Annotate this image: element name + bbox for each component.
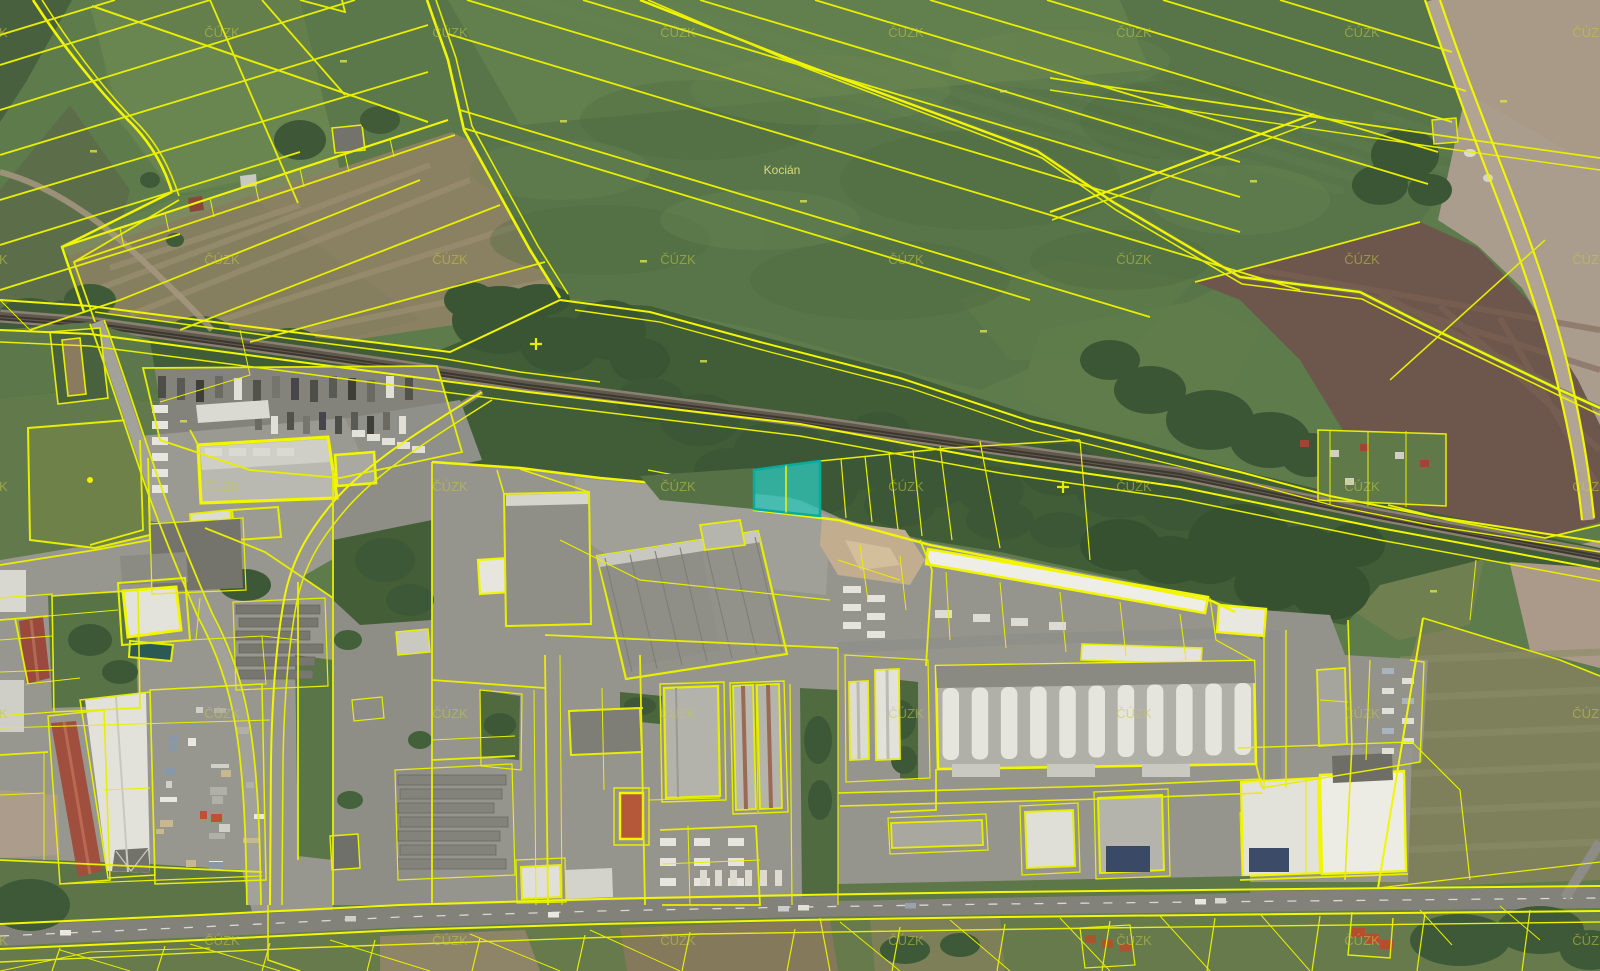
svg-text:ČÚZK: ČÚZK	[432, 252, 468, 267]
svg-text:ČÚZK: ČÚZK	[660, 479, 696, 494]
svg-text:ČÚZK: ČÚZK	[204, 706, 240, 721]
svg-text:ČÚZK: ČÚZK	[432, 933, 468, 948]
svg-text:ČÚZK: ČÚZK	[1572, 25, 1600, 40]
svg-text:ČÚZK: ČÚZK	[1572, 479, 1600, 494]
svg-text:ČÚZK: ČÚZK	[1344, 933, 1380, 948]
svg-text:ČÚZK: ČÚZK	[0, 252, 8, 267]
svg-text:ČÚZK: ČÚZK	[888, 706, 924, 721]
svg-text:ČÚZK: ČÚZK	[1116, 479, 1152, 494]
svg-text:ČÚZK: ČÚZK	[432, 706, 468, 721]
svg-text:ČÚZK: ČÚZK	[660, 25, 696, 40]
svg-text:ČÚZK: ČÚZK	[1116, 252, 1152, 267]
svg-text:ČÚZK: ČÚZK	[1116, 25, 1152, 40]
svg-text:ČÚZK: ČÚZK	[1344, 252, 1380, 267]
svg-text:ČÚZK: ČÚZK	[1344, 25, 1380, 40]
svg-text:ČÚZK: ČÚZK	[0, 933, 8, 948]
svg-text:ČÚZK: ČÚZK	[1116, 933, 1152, 948]
svg-text:ČÚZK: ČÚZK	[1116, 706, 1152, 721]
svg-text:ČÚZK: ČÚZK	[1344, 706, 1380, 721]
svg-text:ČÚZK: ČÚZK	[0, 706, 8, 721]
svg-text:ČÚZK: ČÚZK	[204, 933, 240, 948]
svg-text:Kocián: Kocián	[764, 163, 801, 177]
svg-text:ČÚZK: ČÚZK	[1572, 933, 1600, 948]
svg-text:ČÚZK: ČÚZK	[1572, 252, 1600, 267]
svg-text:ČÚZK: ČÚZK	[432, 25, 468, 40]
svg-text:ČÚZK: ČÚZK	[204, 25, 240, 40]
svg-text:ČÚZK: ČÚZK	[432, 479, 468, 494]
svg-text:ČÚZK: ČÚZK	[0, 25, 8, 40]
svg-text:ČÚZK: ČÚZK	[204, 252, 240, 267]
svg-text:ČÚZK: ČÚZK	[660, 706, 696, 721]
svg-text:ČÚZK: ČÚZK	[204, 479, 240, 494]
svg-text:ČÚZK: ČÚZK	[1344, 479, 1380, 494]
svg-text:ČÚZK: ČÚZK	[888, 933, 924, 948]
svg-text:ČÚZK: ČÚZK	[660, 252, 696, 267]
svg-text:ČÚZK: ČÚZK	[0, 479, 8, 494]
svg-text:ČÚZK: ČÚZK	[660, 933, 696, 948]
svg-text:ČÚZK: ČÚZK	[888, 25, 924, 40]
svg-text:ČÚZK: ČÚZK	[888, 479, 924, 494]
svg-text:ČÚZK: ČÚZK	[1572, 706, 1600, 721]
svg-text:ČÚZK: ČÚZK	[888, 252, 924, 267]
